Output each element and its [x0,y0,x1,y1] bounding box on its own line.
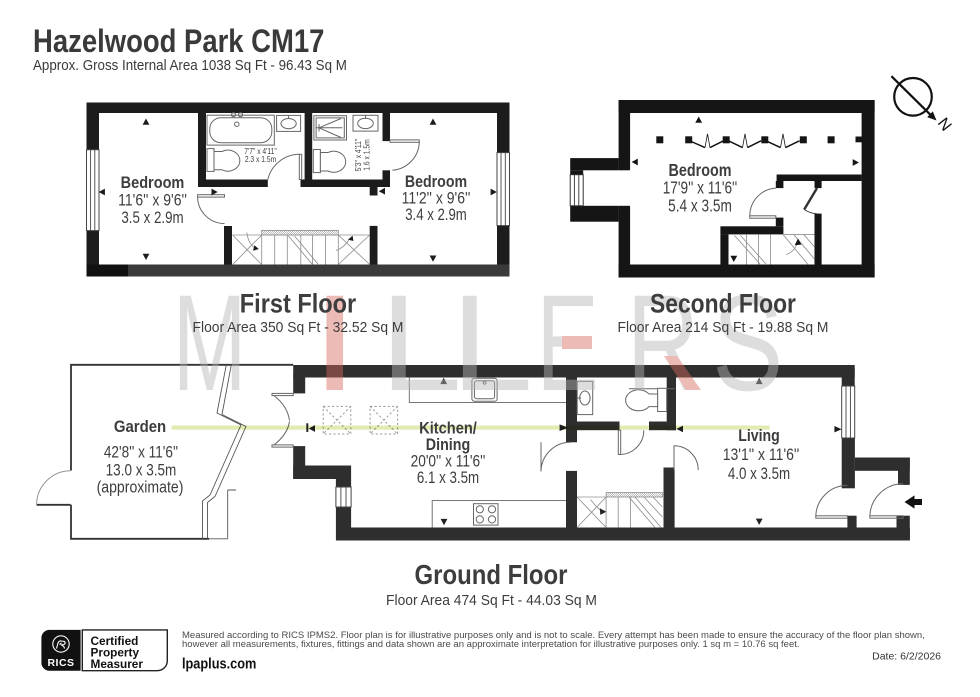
svg-text:Floor Area 214 Sq Ft - 19.88 S: Floor Area 214 Sq Ft - 19.88 Sq M [618,319,829,336]
svg-text:RICS: RICS [47,657,74,669]
svg-text:6.1 x 3.5m: 6.1 x 3.5m [417,469,479,488]
svg-text:Measurer: Measurer [91,657,144,671]
svg-text:Floor Area 474 Sq Ft - 44.03 S: Floor Area 474 Sq Ft - 44.03 Sq M [386,592,597,609]
svg-text:5.4 x 3.5m: 5.4 x 3.5m [668,197,732,216]
svg-text:Bedroom: Bedroom [121,174,185,192]
svg-text:lpaplus.com: lpaplus.com [182,654,256,671]
svg-text:L: L [451,267,533,420]
svg-text:4.0 x 3.5m: 4.0 x 3.5m [728,465,790,484]
svg-text:Second Floor: Second Floor [650,289,796,319]
svg-text:3.4 x 2.9m: 3.4 x 2.9m [405,205,467,224]
svg-text:13.0 x 3.5m: 13.0 x 3.5m [106,461,177,480]
svg-text:Approx. Gross Internal Area 10: Approx. Gross Internal Area 1038 Sq Ft -… [33,57,347,74]
svg-text:Garden: Garden [114,418,166,436]
svg-text:(approximate): (approximate) [97,479,184,497]
svg-text:3.5 x 2.9m: 3.5 x 2.9m [121,209,183,228]
svg-text:First Floor: First Floor [240,289,357,319]
svg-text:Date: 6/2/2026: Date: 6/2/2026 [872,651,941,663]
svg-text:N: N [934,115,955,135]
svg-text:L: L [380,267,462,420]
svg-text:11'6'' x 9'6'': 11'6'' x 9'6'' [118,191,187,209]
svg-text:42'8'' x 11'6'': 42'8'' x 11'6'' [104,443,178,462]
svg-text:17'9'' x 11'6'': 17'9'' x 11'6'' [663,179,738,198]
svg-text:M: M [173,268,247,420]
svg-text:Floor Area 350 Sq Ft - 32.52 S: Floor Area 350 Sq Ft - 32.52 Sq M [193,319,404,336]
svg-text:Kitchen/: Kitchen/ [419,420,477,438]
svg-text:Hazelwood Park CM17: Hazelwood Park CM17 [33,24,324,60]
svg-text:13'1'' x 11'6'': 13'1'' x 11'6'' [723,446,800,464]
svg-text:Bedroom: Bedroom [669,162,732,181]
svg-text:2.3 x 1.5m: 2.3 x 1.5m [245,154,276,164]
svg-text:1.6 x 1.5m: 1.6 x 1.5m [362,139,372,170]
svg-text:Ground Floor: Ground Floor [415,561,568,591]
svg-text:however all measurements, fixt: however all measurements, fixtures, fitt… [182,639,800,649]
svg-text:Living: Living [738,427,780,445]
